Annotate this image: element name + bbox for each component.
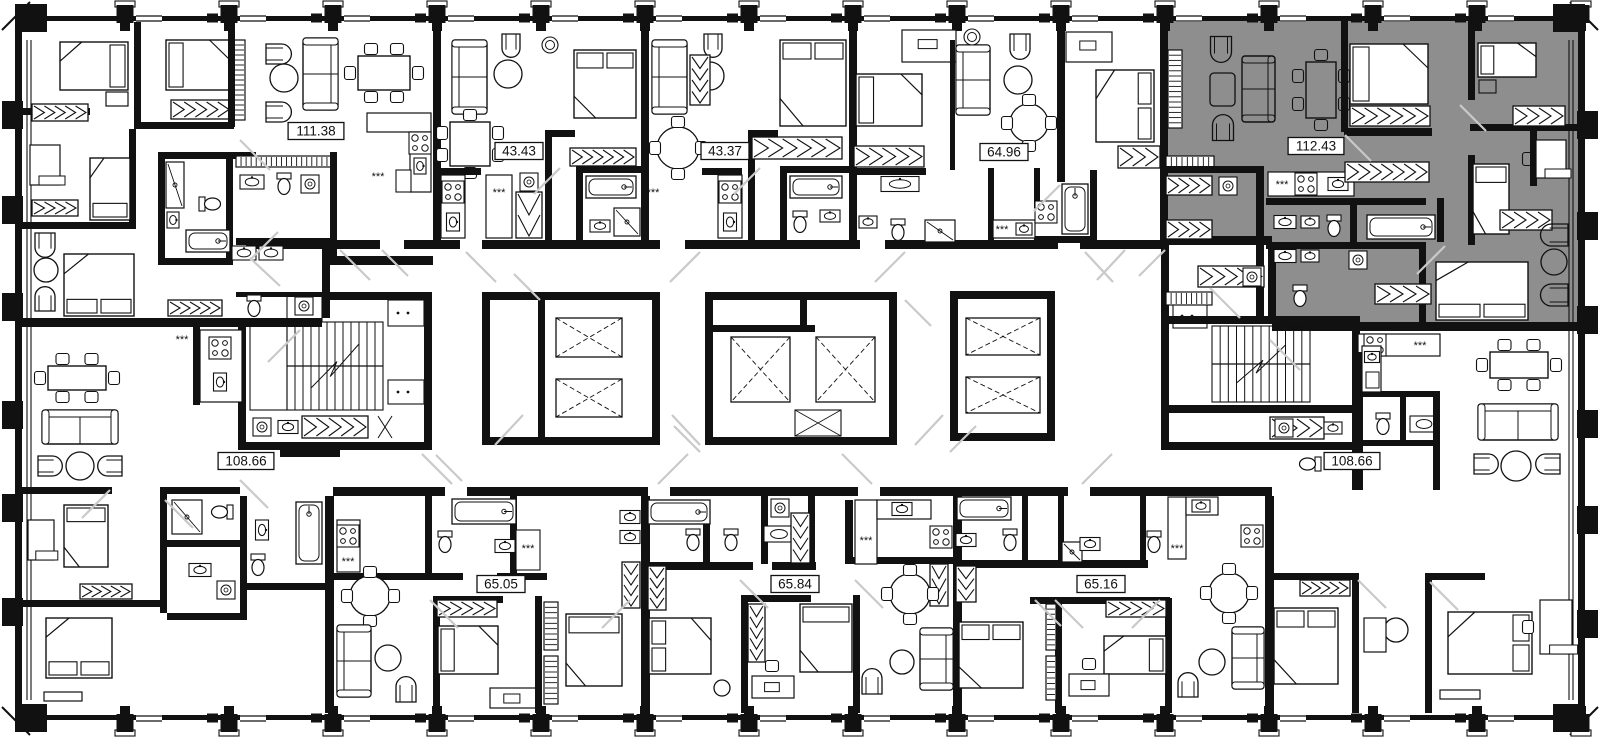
- svg-text:108.66: 108.66: [1331, 454, 1372, 469]
- svg-text:***: ***: [493, 187, 507, 199]
- svg-text:112.43: 112.43: [1296, 139, 1336, 154]
- svg-text:43.37: 43.37: [708, 144, 742, 159]
- svg-text:***: ***: [1414, 340, 1428, 352]
- svg-text:***: ***: [647, 187, 661, 199]
- svg-text:43.43: 43.43: [502, 144, 536, 159]
- svg-text:111.38: 111.38: [296, 124, 335, 139]
- svg-text:65.05: 65.05: [484, 577, 518, 592]
- svg-text:***: ***: [1276, 179, 1290, 191]
- svg-text:***: ***: [1171, 543, 1185, 555]
- svg-text:***: ***: [176, 334, 190, 346]
- svg-text:***: ***: [372, 171, 386, 183]
- svg-text:***: ***: [860, 535, 874, 547]
- svg-text:***: ***: [342, 556, 356, 568]
- svg-text:65.84: 65.84: [778, 577, 812, 592]
- svg-text:***: ***: [996, 224, 1010, 236]
- svg-text:***: ***: [522, 543, 536, 555]
- svg-text:108.66: 108.66: [225, 454, 266, 469]
- svg-text:64.96: 64.96: [987, 145, 1021, 160]
- svg-text:65.16: 65.16: [1084, 577, 1118, 592]
